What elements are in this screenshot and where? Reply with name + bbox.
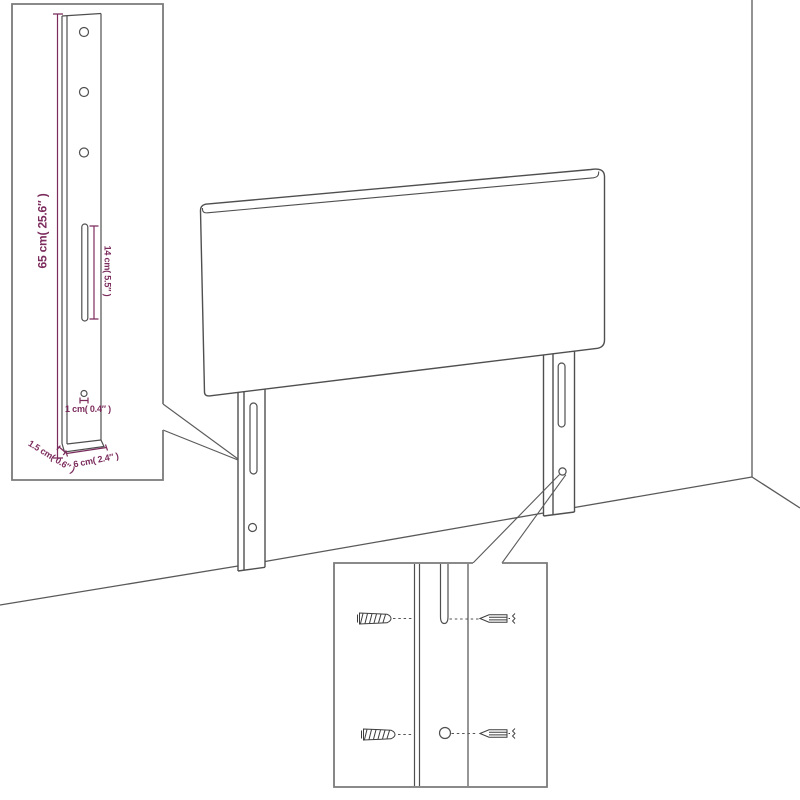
leg-hole-middle — [80, 88, 89, 97]
callout-leader-lines — [163, 404, 566, 563]
leg-slot — [82, 224, 88, 321]
left-inset-leader-lower — [163, 430, 238, 460]
dimension-lines — [53, 14, 108, 458]
hole-diameter-label: 1 cm( 0.4″ ) — [65, 404, 111, 414]
leg-width-label: 6 cm( 2.4″ ) — [72, 451, 119, 470]
leg-small-hole — [81, 391, 87, 397]
product-dimension-diagram: 65 cm( 25.6″ ) 14 cm( 5.5″ ) 1 cm( 0.4″ … — [0, 0, 800, 800]
dim-line-1-5cm — [57, 446, 67, 455]
leg-hole-top — [80, 28, 89, 37]
headboard-left-leg — [238, 386, 265, 571]
leg-hole-lower — [80, 148, 89, 157]
leg-side-view — [62, 14, 104, 453]
left-inset-leader-upper — [163, 404, 238, 459]
headboard-drawing — [200, 169, 604, 571]
bottom-inset-leader-left — [473, 475, 560, 564]
slot-length-label: 14 cm( 5.5″ ) — [103, 246, 113, 297]
dim-line-14cm — [90, 226, 99, 319]
dim-line-1cm — [80, 398, 88, 404]
headboard-right-leg — [544, 351, 575, 516]
floor-line-right — [752, 477, 800, 508]
leg-dimension-inset: 65 cm( 25.6″ ) 14 cm( 5.5″ ) 1 cm( 0.4″ … — [12, 4, 163, 480]
mounting-detail-inset — [334, 563, 547, 787]
leg-height-label: 65 cm( 25.6″ ) — [36, 193, 50, 268]
diagram-canvas: 65 cm( 25.6″ ) 14 cm( 5.5″ ) 1 cm( 0.4″ … — [0, 0, 800, 800]
